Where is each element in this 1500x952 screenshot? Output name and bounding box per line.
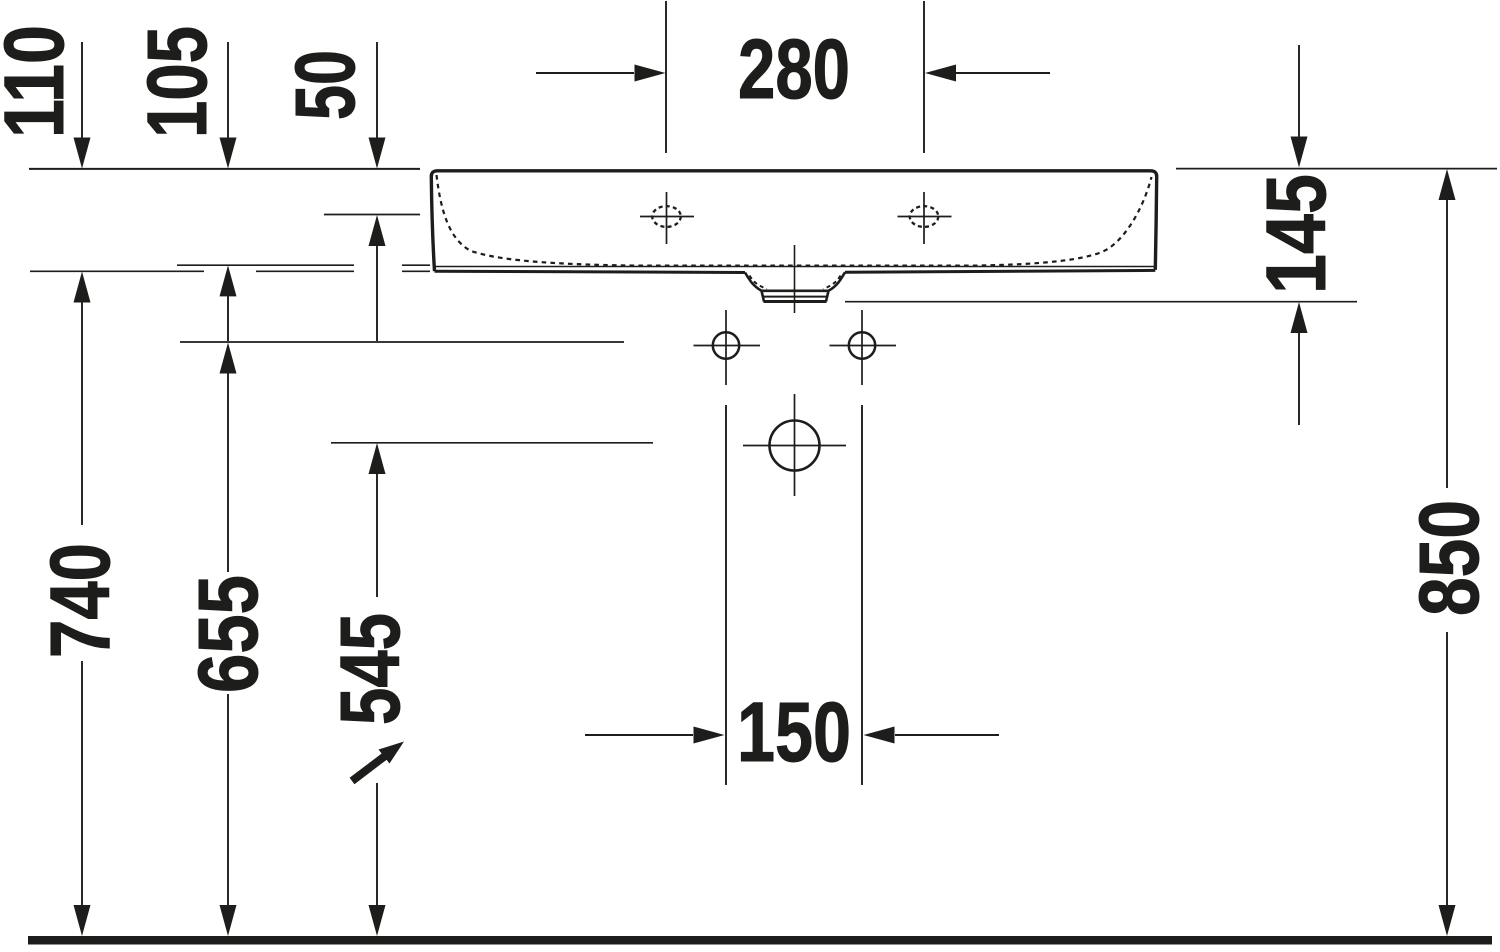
svg-text:105: 105: [130, 26, 224, 138]
svg-text:655: 655: [181, 575, 275, 693]
svg-text:50: 50: [278, 50, 372, 120]
svg-text:740: 740: [33, 543, 127, 658]
svg-text:150: 150: [737, 685, 851, 779]
svg-text:110: 110: [0, 25, 81, 138]
svg-text:545: 545: [323, 613, 417, 725]
svg-text:280: 280: [738, 22, 850, 116]
svg-text:850: 850: [1402, 500, 1496, 616]
svg-text:145: 145: [1249, 174, 1343, 294]
